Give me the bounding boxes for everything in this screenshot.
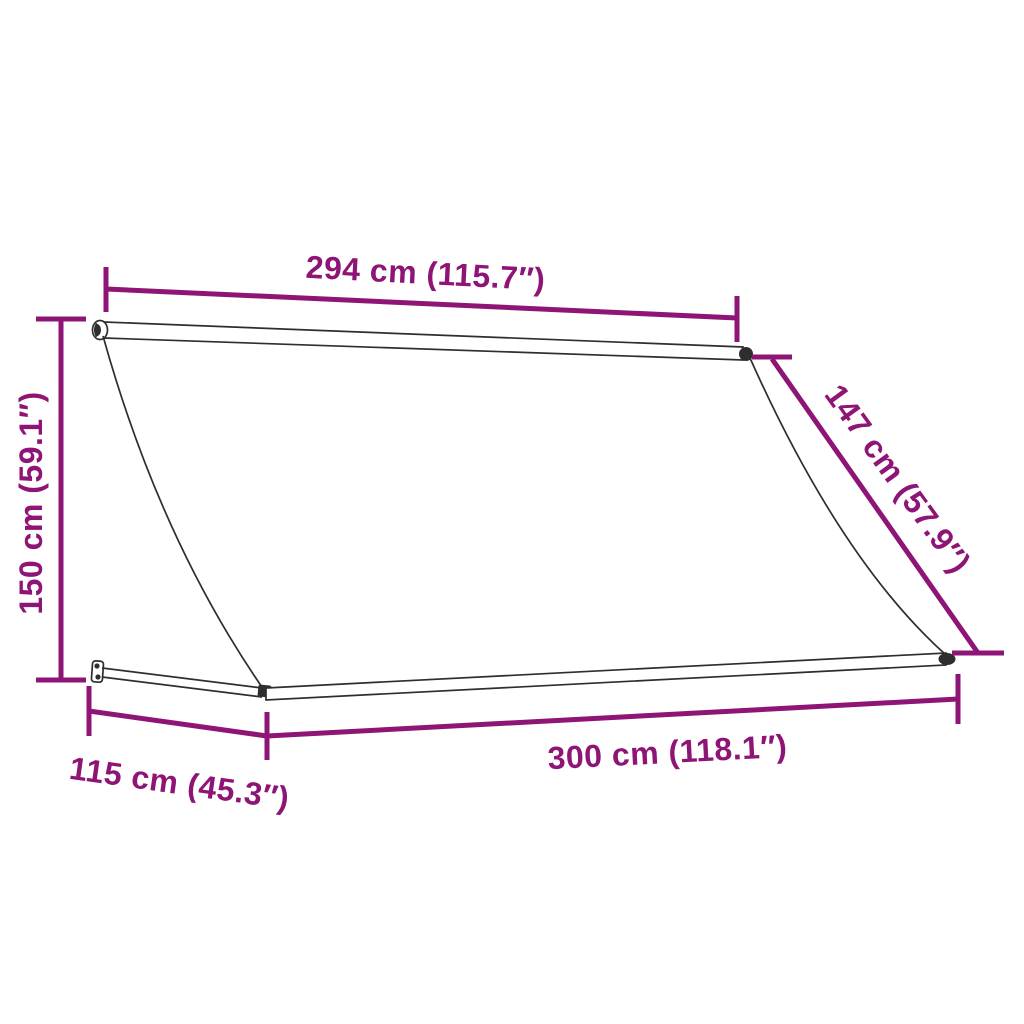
- fabric-left-edge: [103, 336, 264, 690]
- dim-147-line: [772, 359, 978, 653]
- awning-drawing: [91, 321, 955, 701]
- dimension-right-slant: 147 cm (57.9″): [752, 357, 1004, 653]
- dim-150-label: 150 cm (59.1″): [13, 391, 49, 614]
- dim-294-label: 294 cm (115.7″): [305, 249, 546, 298]
- front-bar: [266, 653, 946, 700]
- dim-300-label: 300 cm (118.1″): [547, 728, 788, 777]
- dimension-left-height: 150 cm (59.1″): [13, 319, 86, 680]
- roller-tube: [104, 322, 743, 360]
- support-arm: [102, 668, 262, 697]
- dimension-diagram: 294 cm (115.7″) 150 cm (59.1″) 147 cm (5…: [0, 0, 1024, 1024]
- dim-147-label: 147 cm (57.9″): [818, 378, 978, 580]
- wall-bracket: [91, 661, 103, 683]
- dim-115-label: 115 cm (45.3″): [67, 750, 291, 816]
- dim-294-line: [106, 289, 737, 318]
- dim-300-line: [267, 699, 958, 736]
- awning-diagram-canvas: 294 cm (115.7″) 150 cm (59.1″) 147 cm (5…: [0, 0, 1024, 1024]
- dim-115-line: [89, 711, 267, 736]
- dimension-bottom-depth: 115 cm (45.3″): [67, 686, 291, 816]
